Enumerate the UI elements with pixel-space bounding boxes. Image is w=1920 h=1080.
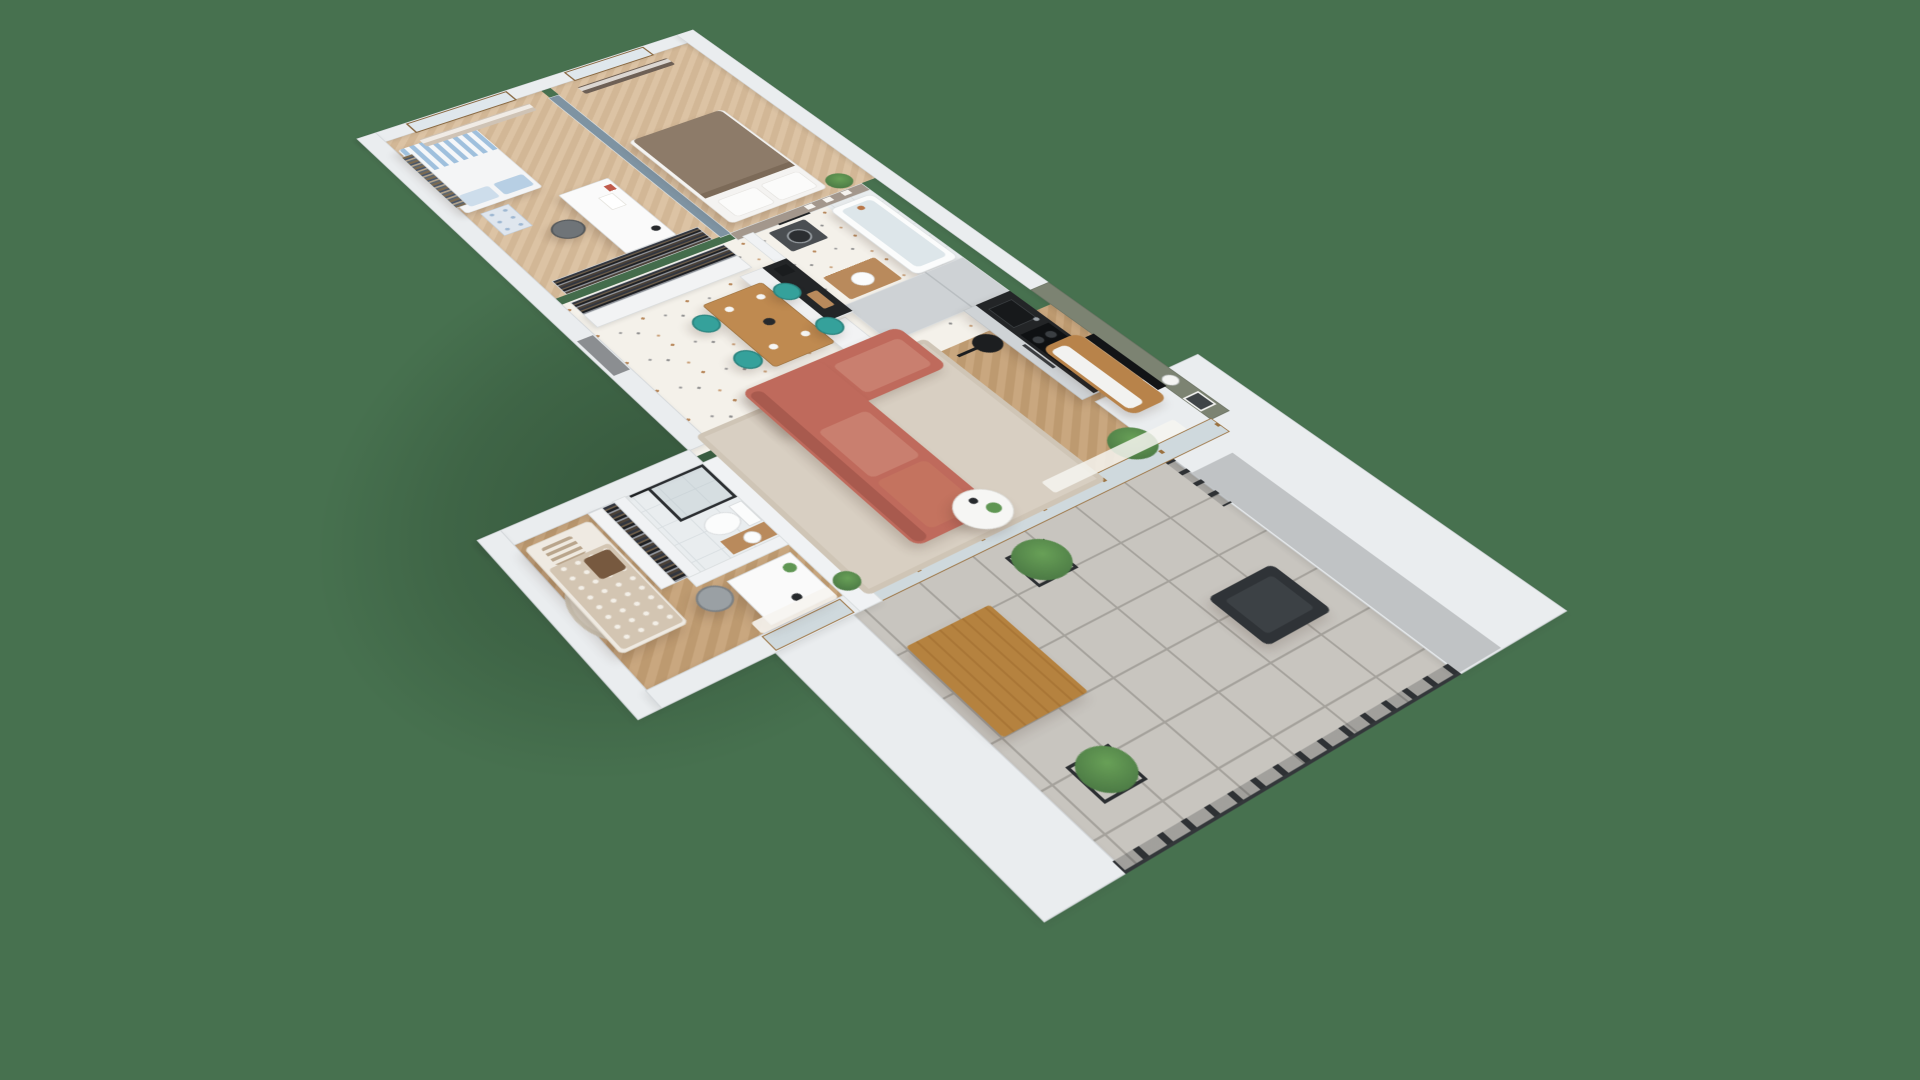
- render-canvas: [0, 0, 1920, 1080]
- apartment-3d-plan: [0, 42, 1616, 1080]
